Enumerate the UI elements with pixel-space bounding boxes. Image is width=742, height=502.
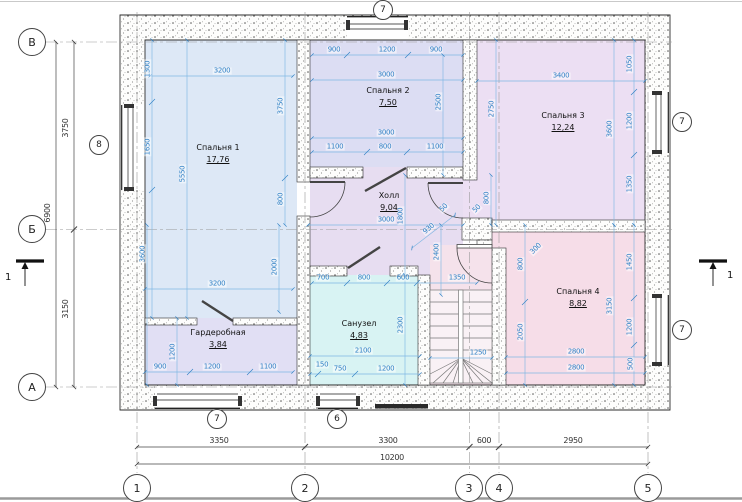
staircase [430,290,492,383]
window-top [346,16,408,39]
bedroom2-floor [310,40,463,167]
door-bedroom4 [457,245,492,249]
room-fills [145,40,645,385]
bathroom-floor [310,275,418,385]
window-right-lower [646,294,669,366]
floor-plan-sheet: Спальня 117,76Спальня 27,50Спальня 312,2… [0,0,742,502]
bedroom3-floor [463,40,645,220]
section-label: 1 [5,272,11,283]
window-right-upper [646,91,669,154]
plan-drawing [0,0,742,502]
window-left [121,104,144,191]
bedroom4-floor [492,232,645,385]
entry-step [375,404,428,409]
window-bottom-middle [316,386,360,409]
bedroom1-floor [145,40,297,318]
window-bottom-left [153,386,242,409]
wardrobe-floor [145,318,297,385]
section-label: 1 [727,270,733,281]
